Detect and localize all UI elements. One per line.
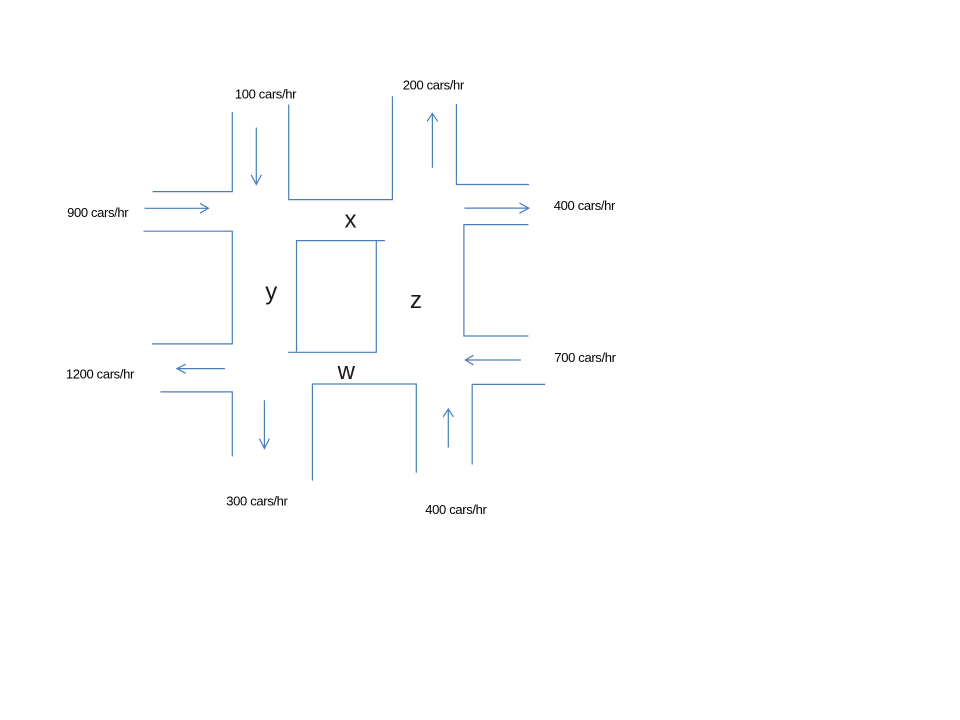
svg-text:700 cars/hr: 700 cars/hr <box>554 350 616 365</box>
svg-text:z: z <box>410 287 422 314</box>
svg-text:w: w <box>337 358 356 385</box>
svg-text:400 cars/hr: 400 cars/hr <box>425 502 487 517</box>
svg-text:100 cars/hr: 100 cars/hr <box>235 86 297 101</box>
svg-text:900 cars/hr: 900 cars/hr <box>67 205 129 220</box>
svg-text:y: y <box>265 279 277 306</box>
svg-text:200 cars/hr: 200 cars/hr <box>403 77 465 92</box>
svg-text:x: x <box>345 207 357 234</box>
svg-text:1200 cars/hr: 1200 cars/hr <box>66 366 135 381</box>
svg-text:300 cars/hr: 300 cars/hr <box>226 493 288 508</box>
svg-text:400 cars/hr: 400 cars/hr <box>554 198 616 213</box>
